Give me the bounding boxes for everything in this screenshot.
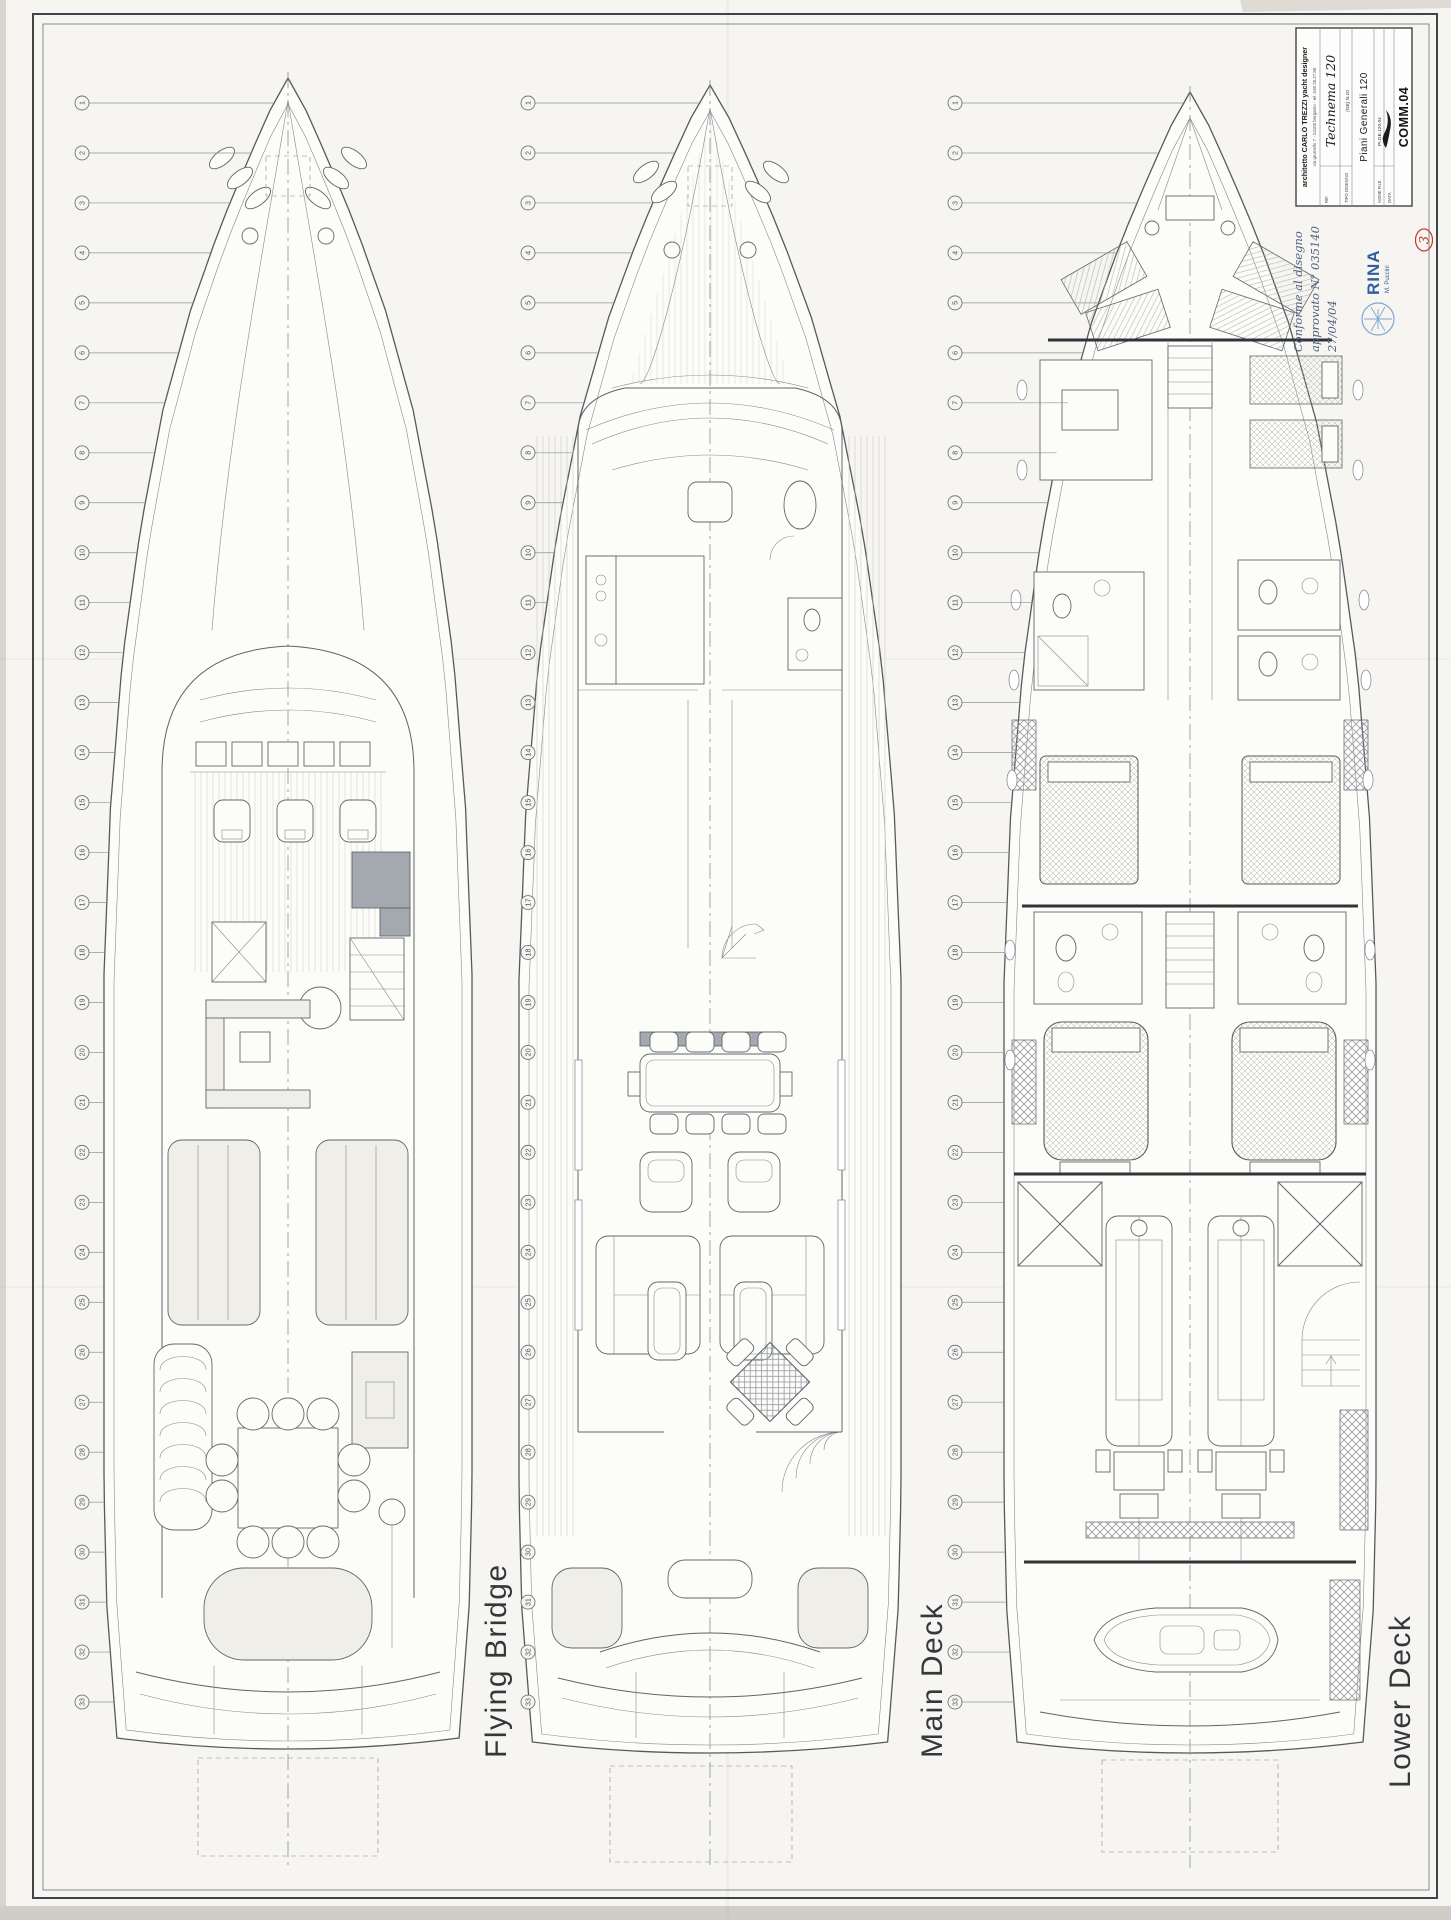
station-number: 21 xyxy=(524,1098,533,1106)
type-label: TIPO DISEGNO xyxy=(1344,172,1349,203)
deck-label-flying-bridge: Flying Bridge xyxy=(480,1563,513,1758)
station-number: 18 xyxy=(78,948,87,956)
station-number: 9 xyxy=(951,501,960,505)
station-number: 26 xyxy=(524,1348,533,1356)
station-number: 32 xyxy=(951,1648,960,1656)
general-arrangement-drawing: 1112223334445556667778889991010101111111… xyxy=(0,0,1451,1920)
station-number: 32 xyxy=(524,1648,533,1656)
capstan xyxy=(379,1499,405,1525)
station-number: 4 xyxy=(951,251,960,255)
side-deck-port xyxy=(534,436,574,1536)
helm-seats xyxy=(214,800,376,842)
crew-head xyxy=(1034,572,1144,690)
project-name-script: Technema 120 xyxy=(1323,55,1338,147)
station-number: 31 xyxy=(951,1598,960,1606)
scan-edge-bottom xyxy=(0,1906,1451,1920)
guest-head xyxy=(1238,560,1340,700)
approval-line-2: approvato N° 035140 xyxy=(1308,226,1322,352)
midship-bathrooms xyxy=(1034,912,1346,1008)
station-number: 26 xyxy=(951,1348,960,1356)
station-number: 5 xyxy=(951,301,960,305)
station-number: 15 xyxy=(524,799,533,807)
station-number: 29 xyxy=(524,1498,533,1506)
station-number: 11 xyxy=(524,599,533,606)
station-number: 22 xyxy=(524,1148,533,1156)
station-number: 27 xyxy=(524,1398,533,1406)
station-number: 14 xyxy=(951,749,960,757)
station-number: 10 xyxy=(951,549,960,557)
stamp-sub: M. Puccini xyxy=(1385,265,1391,293)
station-number: 18 xyxy=(524,948,533,956)
station-number: 17 xyxy=(951,899,960,907)
file-label: NOME FILE xyxy=(1377,180,1382,203)
station-number: 14 xyxy=(78,749,87,757)
station-number: 29 xyxy=(951,1498,960,1506)
file-value: PI.GE.120.04 xyxy=(1377,117,1383,146)
station-number: 16 xyxy=(524,849,533,857)
tank-vent-starboard xyxy=(1278,1182,1362,1266)
station-number: 4 xyxy=(524,251,533,255)
station-number: 28 xyxy=(951,1448,960,1456)
bar-unit xyxy=(212,922,266,982)
title-block: architetto CARLO TREZZI yacht designer v… xyxy=(1296,28,1412,206)
stamp-org: RINA xyxy=(1364,249,1383,295)
station-number: 30 xyxy=(524,1548,533,1556)
station-number: 33 xyxy=(78,1698,87,1706)
station-number: 12 xyxy=(78,649,87,657)
type-value: (GE) N.10 xyxy=(1345,90,1351,112)
station-number: 4 xyxy=(78,251,87,255)
scan-edge-left xyxy=(0,0,6,1920)
station-number: 14 xyxy=(524,749,533,757)
station-number: 2 xyxy=(524,151,533,155)
station-number: 16 xyxy=(78,849,87,857)
station-number: 32 xyxy=(78,1648,87,1656)
station-number: 19 xyxy=(951,998,960,1006)
station-number: 23 xyxy=(951,1198,960,1206)
deck-label-lower-deck: Lower Deck xyxy=(1384,1615,1417,1788)
station-number: 15 xyxy=(951,799,960,807)
station-number: 10 xyxy=(524,549,533,557)
station-number: 11 xyxy=(951,599,960,606)
station-number: 23 xyxy=(78,1198,87,1206)
tender xyxy=(1094,1608,1278,1672)
station-number: 28 xyxy=(524,1448,533,1456)
station-number: 9 xyxy=(524,501,533,505)
station-number: 30 xyxy=(78,1548,87,1556)
station-number: 24 xyxy=(951,1248,960,1256)
winch xyxy=(318,228,334,244)
winch xyxy=(664,242,680,258)
station-number: 25 xyxy=(78,1298,87,1306)
aft-locker xyxy=(352,1352,408,1448)
station-number: 8 xyxy=(524,451,533,455)
aft-sunpad xyxy=(204,1568,372,1660)
station-number: 9 xyxy=(78,501,87,505)
station-number: 20 xyxy=(524,1048,533,1056)
station-number: 31 xyxy=(78,1598,87,1606)
tank-vent-port xyxy=(1018,1182,1102,1266)
station-number: 12 xyxy=(951,649,960,657)
winch xyxy=(242,228,258,244)
date-label: DATA xyxy=(1387,192,1392,203)
station-number: 12 xyxy=(524,649,533,657)
station-number: 5 xyxy=(524,301,533,305)
station-number: 13 xyxy=(951,699,960,707)
side-deck-starboard xyxy=(846,436,886,1536)
station-number: 22 xyxy=(951,1148,960,1156)
station-number: 21 xyxy=(78,1098,87,1106)
side-vent-grate xyxy=(1340,1410,1368,1530)
station-number: 8 xyxy=(78,451,87,455)
station-number: 20 xyxy=(951,1048,960,1056)
station-number: 13 xyxy=(524,699,533,707)
station-number: 16 xyxy=(951,849,960,857)
station-number: 24 xyxy=(78,1248,87,1256)
station-number: 11 xyxy=(78,599,87,606)
deck-label-main-deck: Main Deck xyxy=(916,1603,949,1758)
station-number: 6 xyxy=(78,351,87,355)
station-number: 24 xyxy=(524,1248,533,1256)
architect-address: via grumello 7 - 24100 bergamo - tel. 03… xyxy=(1312,67,1317,166)
station-number: 30 xyxy=(951,1548,960,1556)
station-number: 7 xyxy=(951,401,960,405)
station-number: 29 xyxy=(78,1498,87,1506)
station-number: 19 xyxy=(78,998,87,1006)
winch xyxy=(740,242,756,258)
station-number: 2 xyxy=(78,151,87,155)
curved-staircase xyxy=(154,1344,212,1530)
station-number: 27 xyxy=(78,1398,87,1406)
station-number: 3 xyxy=(78,201,87,205)
station-number: 25 xyxy=(524,1298,533,1306)
stairs-to-main-deck xyxy=(350,938,404,1020)
station-number: 33 xyxy=(951,1698,960,1706)
station-number: 6 xyxy=(951,351,960,355)
day-head xyxy=(788,598,842,670)
station-number: 27 xyxy=(951,1398,960,1406)
station-number: 21 xyxy=(951,1098,960,1106)
station-number: 18 xyxy=(951,948,960,956)
approval-line-3: 27/04/04 xyxy=(1325,300,1339,353)
station-number: 22 xyxy=(78,1148,87,1156)
station-number: 7 xyxy=(524,401,533,405)
station-number: 26 xyxy=(78,1348,87,1356)
drawing-title: Piani Generali 120 xyxy=(1359,72,1370,162)
galley xyxy=(586,556,704,684)
station-number: 17 xyxy=(78,899,87,907)
station-number: 20 xyxy=(78,1048,87,1056)
station-number: 28 xyxy=(78,1448,87,1456)
approval-line-1: Conforme al disegno xyxy=(1291,231,1305,352)
architect-name: architetto CARLO TREZZI yacht designer xyxy=(1300,47,1309,187)
station-number: 6 xyxy=(524,351,533,355)
station-number: 5 xyxy=(78,301,87,305)
station-number: 25 xyxy=(951,1298,960,1306)
commission-number: COMM.04 xyxy=(1397,87,1411,147)
station-number: 17 xyxy=(524,899,533,907)
station-number: 7 xyxy=(78,401,87,405)
page-mark-number: 3 xyxy=(1418,236,1433,244)
crew-mess xyxy=(1040,360,1152,480)
station-number: 1 xyxy=(78,101,87,105)
station-number: 23 xyxy=(524,1198,533,1206)
station-number: 2 xyxy=(951,151,960,155)
station-number: 3 xyxy=(524,201,533,205)
dining-table xyxy=(628,1032,792,1134)
station-number: 31 xyxy=(524,1598,533,1606)
station-number: 10 xyxy=(78,549,87,557)
station-number: 13 xyxy=(78,699,87,707)
station-number: 8 xyxy=(951,451,960,455)
station-number: 19 xyxy=(524,998,533,1006)
station-number: 15 xyxy=(78,799,87,807)
station-number: 3 xyxy=(951,201,960,205)
station-number: 1 xyxy=(524,101,533,105)
scanned-drawing-sheet: 1112223334445556667778889991010101111111… xyxy=(0,0,1451,1920)
ref-label: RIF. xyxy=(1324,196,1329,203)
station-number: 33 xyxy=(524,1698,533,1706)
station-number: 1 xyxy=(951,101,960,105)
